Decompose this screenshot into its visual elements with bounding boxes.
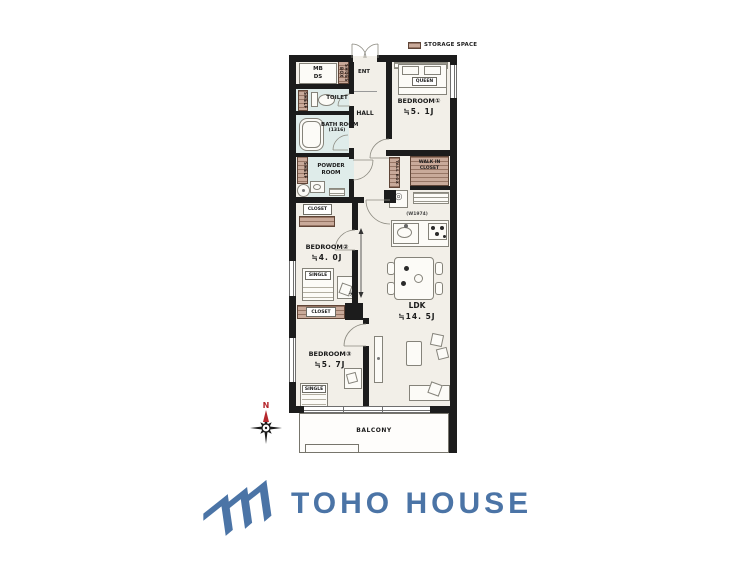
wall-right [450, 55, 457, 415]
hall-label: HALL [351, 111, 379, 118]
queen-bed-footline [398, 87, 447, 88]
queen-bed-tag: QUEEN [412, 77, 437, 86]
closet-bedroom2-stripes [299, 216, 335, 227]
dining-chair-3 [435, 262, 443, 275]
window-bedroom3 [289, 338, 296, 382]
window-balcony [304, 406, 430, 413]
single-bed3-slats [302, 394, 326, 406]
legend-storage-swatch [408, 42, 421, 49]
closet-bedroom3-tag: CLOSET [306, 307, 336, 317]
wall-bedroom3-east-1 [363, 318, 369, 324]
shoes-box-label: SHOES BOX [338, 61, 349, 84]
balcony-label: BALCONY [339, 428, 409, 435]
bedroom3-size-label: ≒5. 7J [298, 361, 362, 369]
compass-north-label: N [263, 401, 270, 410]
powder-room-label-2: ROOM [314, 170, 348, 176]
dining-chair-1 [387, 262, 395, 275]
wall-bedroom2-east-1 [352, 203, 358, 230]
bedroom1-label: BEDROOM① [390, 98, 448, 105]
kitchen-shelf [413, 192, 449, 204]
queen-pillow-left [402, 66, 419, 75]
table-plate-2 [401, 281, 406, 286]
table-bowl [414, 274, 423, 283]
bedroom3-label: BEDROOM③ [298, 351, 362, 358]
low-table [406, 341, 422, 366]
table-plate-1 [404, 266, 409, 271]
powder-room-label-1: POWDER [314, 163, 348, 169]
ldk-size-label: ≒14. 5J [389, 313, 445, 321]
wall-bedroom1-south [386, 150, 457, 156]
wall-top-right [377, 55, 457, 62]
powder-linen-shelf [329, 188, 345, 196]
floorplan-canvas: ◎ ✳ [0, 0, 750, 563]
queen-pillow-right [424, 66, 441, 75]
dining-chair-4 [435, 282, 443, 295]
toilet-label: TOILET [324, 95, 350, 101]
single-bed3-text: SINGLE [305, 387, 323, 392]
single-bed2-tag: SINGLE [305, 271, 331, 280]
bedroom2-label: BEDROOM② [299, 244, 355, 251]
burner-2 [440, 226, 444, 230]
window-bedroom2 [289, 261, 296, 296]
closet-bedroom2-text: CLOSET [308, 207, 327, 212]
tall-box-label: TALL BOX [389, 158, 400, 187]
bathtub-inner [302, 121, 321, 148]
burner-4 [443, 235, 446, 238]
wall-wic-south [410, 186, 457, 190]
wall-closet3-east [345, 303, 363, 320]
logo-chevron-1 [203, 494, 232, 536]
ent-label: ENT [352, 69, 376, 75]
genkan-step-line [352, 91, 377, 92]
washing-machine-dot [302, 189, 305, 192]
bedroom1-size-label: ≒5. 1J [390, 108, 448, 116]
wall-hall-west-1 [349, 62, 354, 94]
tv-knob [377, 357, 380, 360]
dining-chair-2 [387, 282, 395, 295]
wall-mb-south [296, 84, 353, 89]
toilet-shelf-label: SHELF [298, 91, 308, 110]
wic-label-2: CLOSET [411, 167, 448, 172]
window-bedroom1 [450, 65, 457, 98]
wall-bedroom3-east-2 [363, 346, 369, 407]
closet-bedroom3-text: CLOSET [311, 310, 330, 315]
legend-storage-text: STORAGE SPACE [424, 42, 504, 48]
closet-bedroom2-tag: CLOSET [303, 204, 332, 215]
compass-rose: N [244, 398, 288, 450]
wall-toilet-bath [296, 111, 349, 115]
powder-sink [313, 184, 321, 190]
wall-balcony-right [448, 406, 457, 453]
wall-hall-corner-block [384, 190, 396, 203]
ds-label: DS [299, 74, 337, 80]
floor-cushion-1 [430, 333, 444, 347]
ldk-label: LDK [396, 302, 438, 310]
compass-hub-dot [265, 427, 267, 429]
bathroom-size-label: (1316) [321, 129, 353, 134]
window-mullion-2 [382, 406, 383, 413]
single-bed2-slats [303, 287, 333, 300]
single-bed2-text: SINGLE [309, 273, 327, 278]
queen-bed-tag-text: QUEEN [416, 79, 433, 84]
wall-bath-powder [296, 153, 354, 157]
bedroom2-size-label: ≒4. 0J [299, 254, 355, 262]
toho-house-logo-mark [203, 477, 285, 540]
burner-3 [435, 232, 439, 236]
kitchen-width-label: (W1974) [402, 213, 432, 218]
burner-1 [431, 226, 435, 230]
entrance-gap-floor [353, 56, 377, 62]
mb-label: MB [299, 66, 337, 72]
kitchen-faucet [404, 224, 408, 228]
compass-north-needle [263, 410, 269, 422]
toilet-tank [311, 92, 318, 107]
single-bed3-tag: SINGLE [302, 385, 326, 393]
balcony-step [305, 444, 359, 453]
toho-house-logo-text: TOHO HOUSE [291, 489, 532, 519]
window-mullion-1 [343, 406, 344, 413]
kitchen-sink [397, 227, 412, 238]
powder-shelf-label: SHELF [297, 158, 308, 182]
